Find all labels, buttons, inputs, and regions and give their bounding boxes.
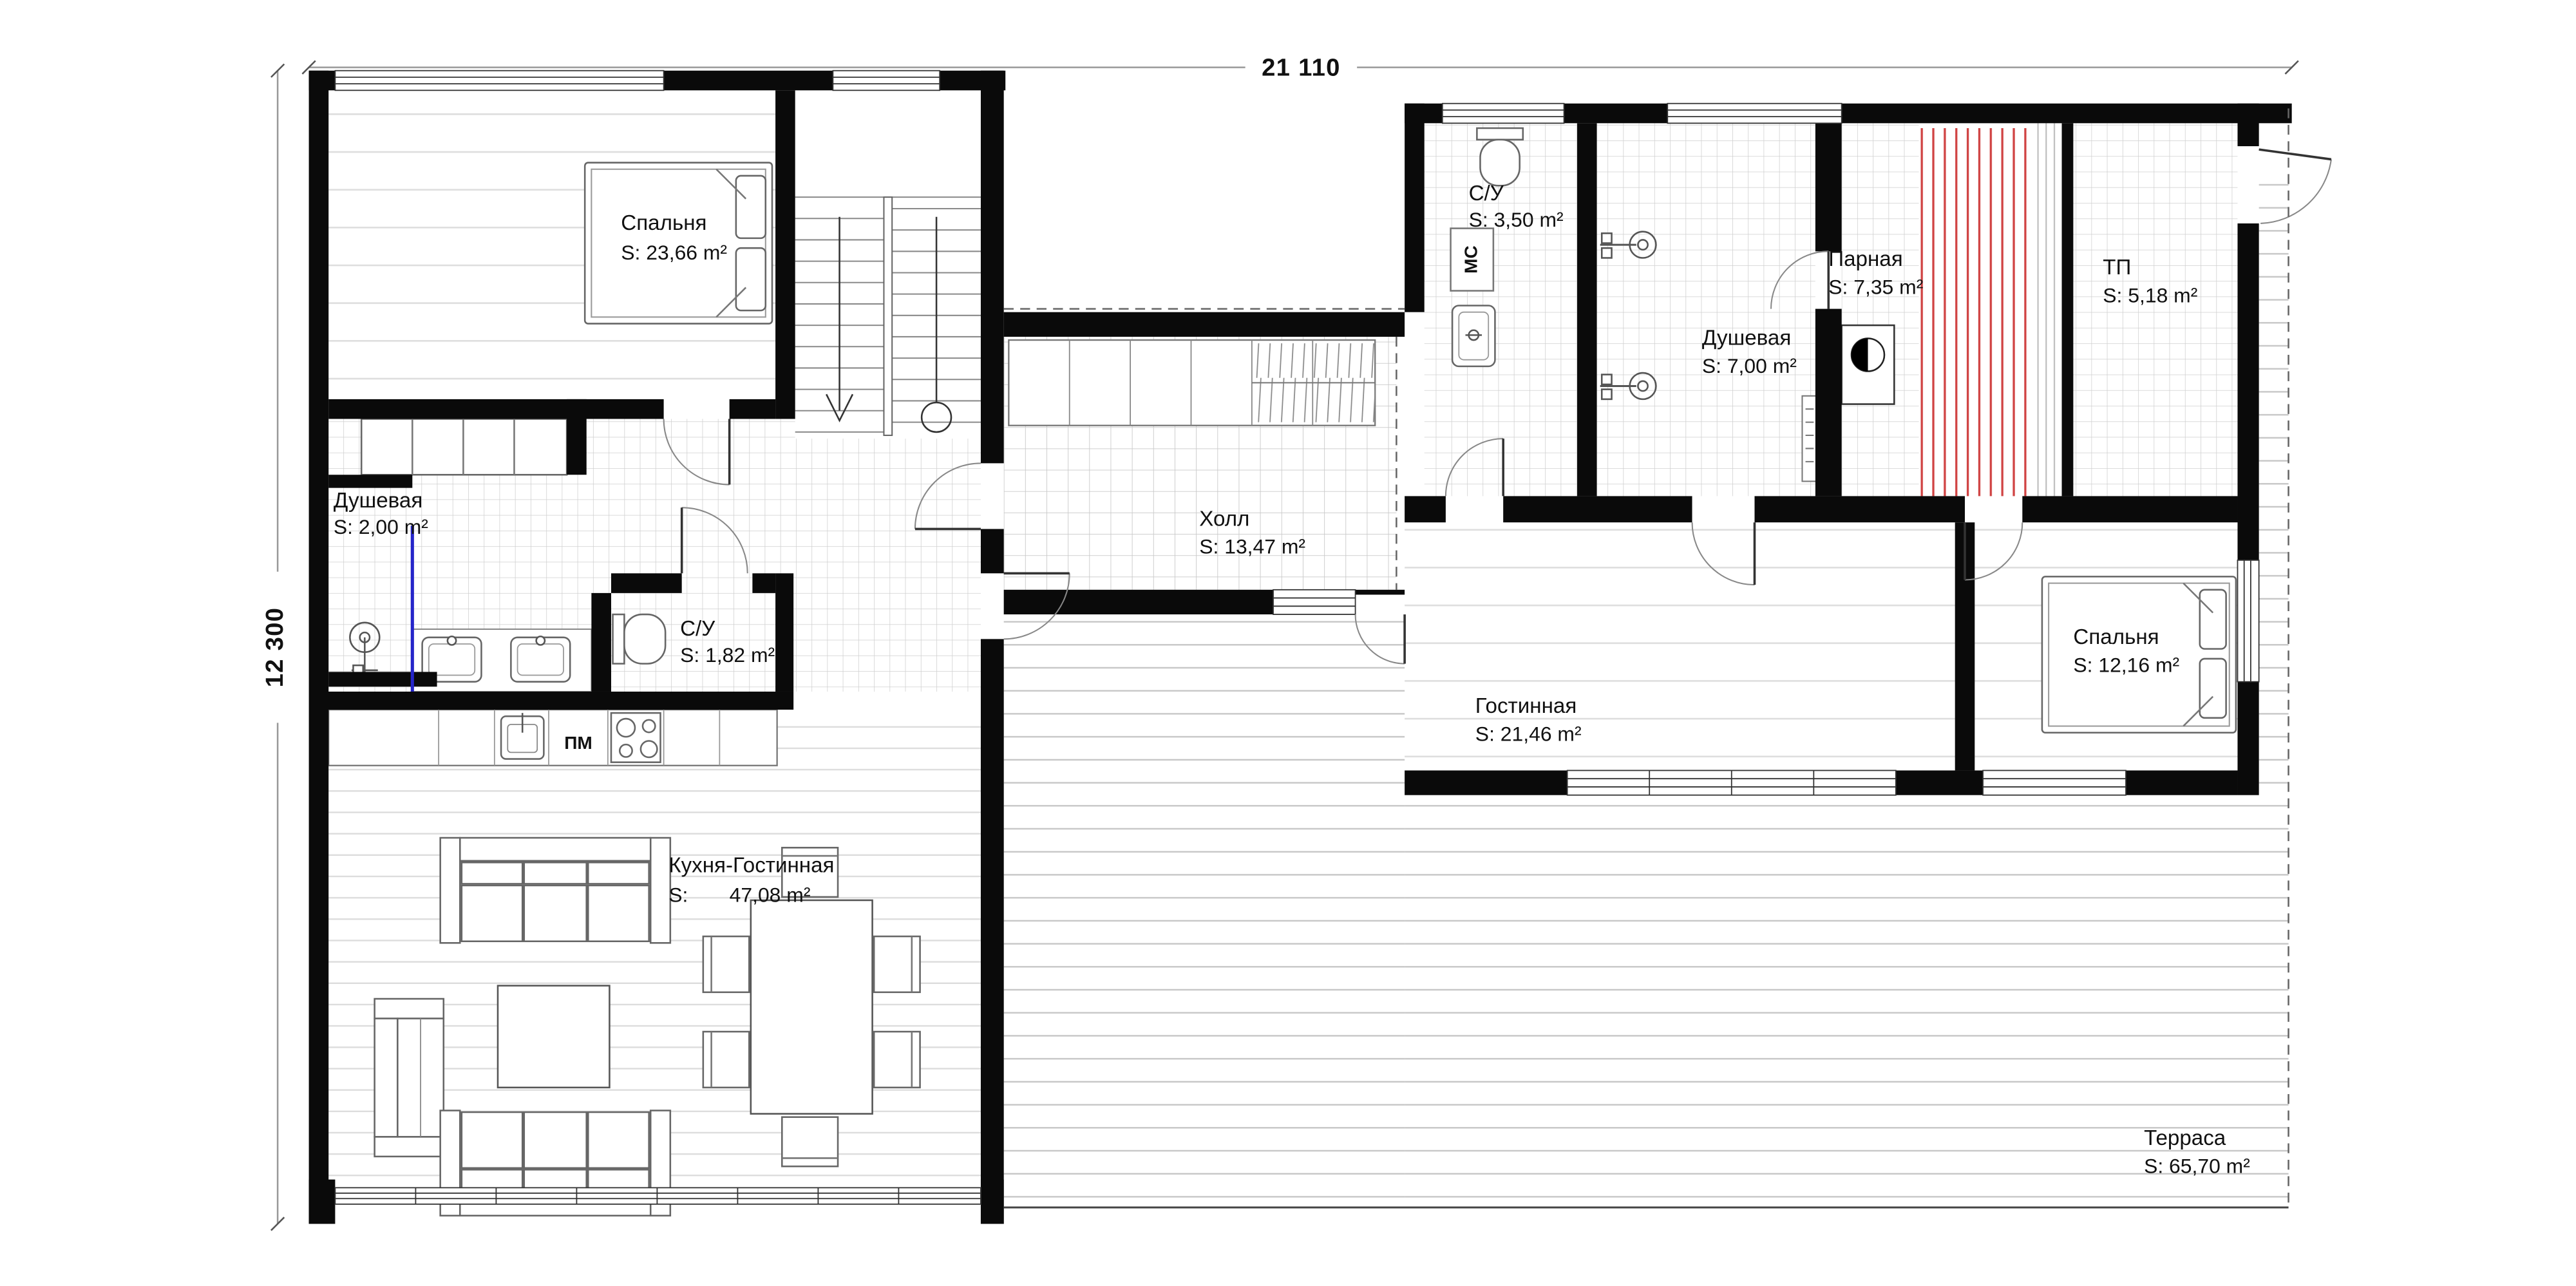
hall-wardrobe [1009, 340, 1375, 426]
pillow [736, 248, 766, 310]
stove-icon [611, 713, 661, 762]
window [2237, 560, 2259, 682]
pillow [2200, 659, 2226, 718]
window [1667, 104, 1841, 124]
toilet-icon-2 [1477, 128, 1522, 185]
dining-chair [782, 1117, 838, 1167]
room-area-bedroom-2: S: 12,16 m² [2073, 653, 2179, 676]
pillow [736, 176, 766, 238]
toilet-icon [613, 614, 666, 664]
kitchen-sink-icon [501, 713, 544, 759]
steam-room-floor [1842, 123, 1919, 496]
washing-machine-label: МС [1461, 245, 1481, 274]
room-label-bedroom-1: Спальня [621, 211, 706, 235]
dishwasher-label: ПМ [564, 733, 592, 753]
kitchen-counter [328, 710, 777, 766]
double-sink-counter [412, 629, 591, 692]
sauna-stove-icon [1842, 325, 1895, 404]
room-area-hall: S: 13,47 m² [1199, 535, 1305, 558]
room-area-living-room: S: 21,46 m² [1475, 723, 1582, 746]
towel-rail [1802, 396, 1817, 482]
floor-plan-page: 21 110 12 300 Спальня S: 23,66 m² Душева… [0, 0, 2576, 1285]
room-area-shower-2: S: 7,00 m² [1702, 354, 1797, 377]
heated-floor-room-floor [2073, 123, 2237, 496]
window [1983, 770, 2126, 795]
room-area-terrace: S: 65,70 m² [2144, 1154, 2250, 1177]
dining-chair [874, 1032, 920, 1088]
room-area-heated-floor: S: 5,18 m² [2103, 283, 2197, 307]
window-band-kitchen [335, 1187, 981, 1204]
floor-plan-drawing: 21 110 12 300 Спальня S: 23,66 m² Душева… [0, 0, 2576, 1285]
room-area-shower-1: S: 2,00 m² [334, 515, 428, 538]
dimension-left: 12 300 [256, 64, 292, 1230]
armchair [375, 999, 444, 1157]
window [1273, 590, 1356, 614]
sofa-top [440, 838, 670, 943]
dining-chair [874, 936, 920, 992]
dimension-height-label: 12 300 [261, 607, 289, 688]
room-area-prefix-kitchen-living: S: [668, 884, 688, 907]
terrace-deck-side [2259, 181, 2289, 795]
window [1443, 104, 1564, 124]
room-area-wc-2: S: 3,50 m² [1469, 208, 1564, 231]
shower-2-floor [1597, 123, 1815, 496]
room-area-wc-1: S: 1,82 m² [680, 643, 775, 667]
sauna-bench-stripes [1919, 128, 2032, 496]
window [833, 71, 940, 91]
room-label-kitchen-living: Кухня-Гостинная [668, 854, 834, 878]
closet-row [361, 419, 567, 475]
window [1567, 770, 1896, 795]
coffee-table [498, 986, 609, 1088]
room-label-heated-floor: ТП [2103, 256, 2131, 279]
room-area-steam-room: S: 7,35 m² [1828, 276, 1923, 299]
room-area-bedroom-1: S: 23,66 m² [621, 241, 727, 264]
room-label-wc-1: С/У [680, 617, 715, 641]
room-area-kitchen-living: 47,08 m² [730, 884, 811, 907]
dining-chair [703, 1032, 749, 1088]
room-label-bedroom-2: Спальня [2073, 625, 2159, 649]
room-label-wc-2: С/У [1469, 182, 1504, 205]
sink-icon-2 [1452, 305, 1495, 366]
room-label-living-room: Гостинная [1475, 694, 1577, 718]
room-label-shower-1: Душевая [334, 489, 422, 513]
room-label-terrace: Терраса [2144, 1126, 2226, 1150]
sauna-wood-wall [2037, 123, 2061, 496]
room-label-hall: Холл [1199, 507, 1249, 531]
dining-chair [703, 936, 749, 992]
room-label-shower-2: Душевая [1702, 326, 1791, 350]
dimension-width-label: 21 110 [1262, 53, 1341, 81]
terrace-deck-left [1004, 614, 1405, 1207]
room-label-steam-room: Парная [1828, 247, 1902, 271]
pillow [2200, 590, 2226, 649]
window [335, 71, 663, 91]
